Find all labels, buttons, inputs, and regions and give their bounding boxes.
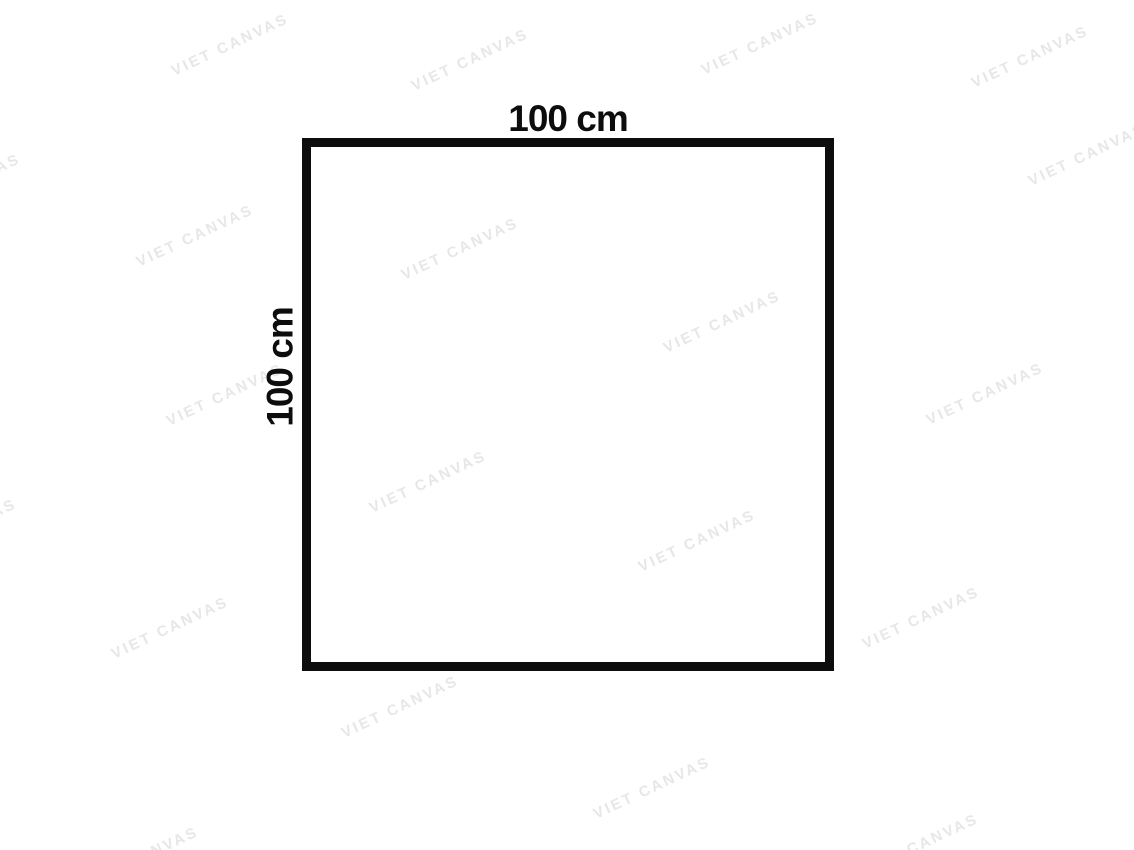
left-dimension-label: 100 cm bbox=[262, 307, 299, 427]
diagram-layer: 100 cm 100 cm bbox=[0, 0, 1134, 850]
top-dimension-label: 100 cm bbox=[508, 100, 628, 137]
canvas-size-diagram: VIET CANVASVIET CANVASVIET CANVASVIET CA… bbox=[0, 0, 1134, 850]
square-outline bbox=[302, 138, 834, 671]
